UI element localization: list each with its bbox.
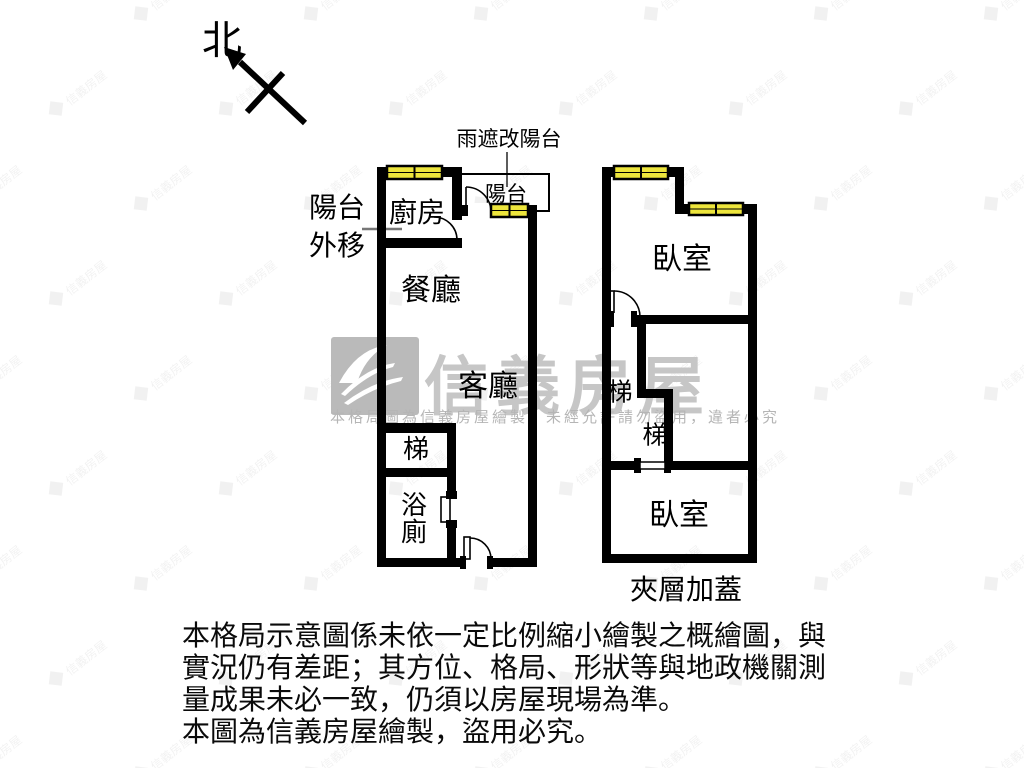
- bathroom-label: 浴廁: [400, 492, 428, 546]
- rain-note-label: 雨遮改陽台: [457, 127, 562, 151]
- stairs-label-right-lower: 梯: [642, 423, 667, 452]
- divider-opening-symbol: [640, 462, 665, 469]
- balcony-label: 陽台: [485, 182, 527, 206]
- disclaimer-text: 本格局示意圖係未依一定比例縮小繪製之概繪圖，與 實況仍有差距；其方位、格局、形狀…: [182, 621, 826, 749]
- disclaimer-line: 本格局示意圖係未依一定比例縮小繪製之概繪圖，與: [182, 621, 826, 653]
- bedroom-lower-label: 臥室: [649, 499, 709, 534]
- north-label: 北: [202, 8, 242, 66]
- dining-room-label: 餐廳: [401, 274, 461, 309]
- living-room-label: 客廳: [458, 370, 518, 405]
- disclaimer-line: 量成果未必一致，仍須以房屋現場為準。: [182, 685, 826, 717]
- stairs-label-right-upper: 梯: [607, 380, 632, 409]
- balcony-moved-label: 陽台 外移: [309, 190, 365, 266]
- disclaimer-line: 實況仍有差距；其方位、格局、形狀等與地政機關測: [182, 653, 826, 685]
- kitchen-label: 廚房: [389, 198, 445, 230]
- stairs-label-left: 梯: [403, 435, 429, 465]
- floorplan-page: 信義房屋信義房屋信義房屋信義房屋信義房屋信義房屋信義房屋信義房屋信義房屋信義房屋…: [0, 0, 1024, 768]
- door-leaves: [441, 291, 614, 559]
- mezzanine-caption: 夾層加蓋: [630, 575, 742, 607]
- disclaimer-line: 本圖為信義房屋繪製，盜用必究。: [182, 717, 826, 749]
- bedroom-upper-label: 臥室: [652, 243, 712, 278]
